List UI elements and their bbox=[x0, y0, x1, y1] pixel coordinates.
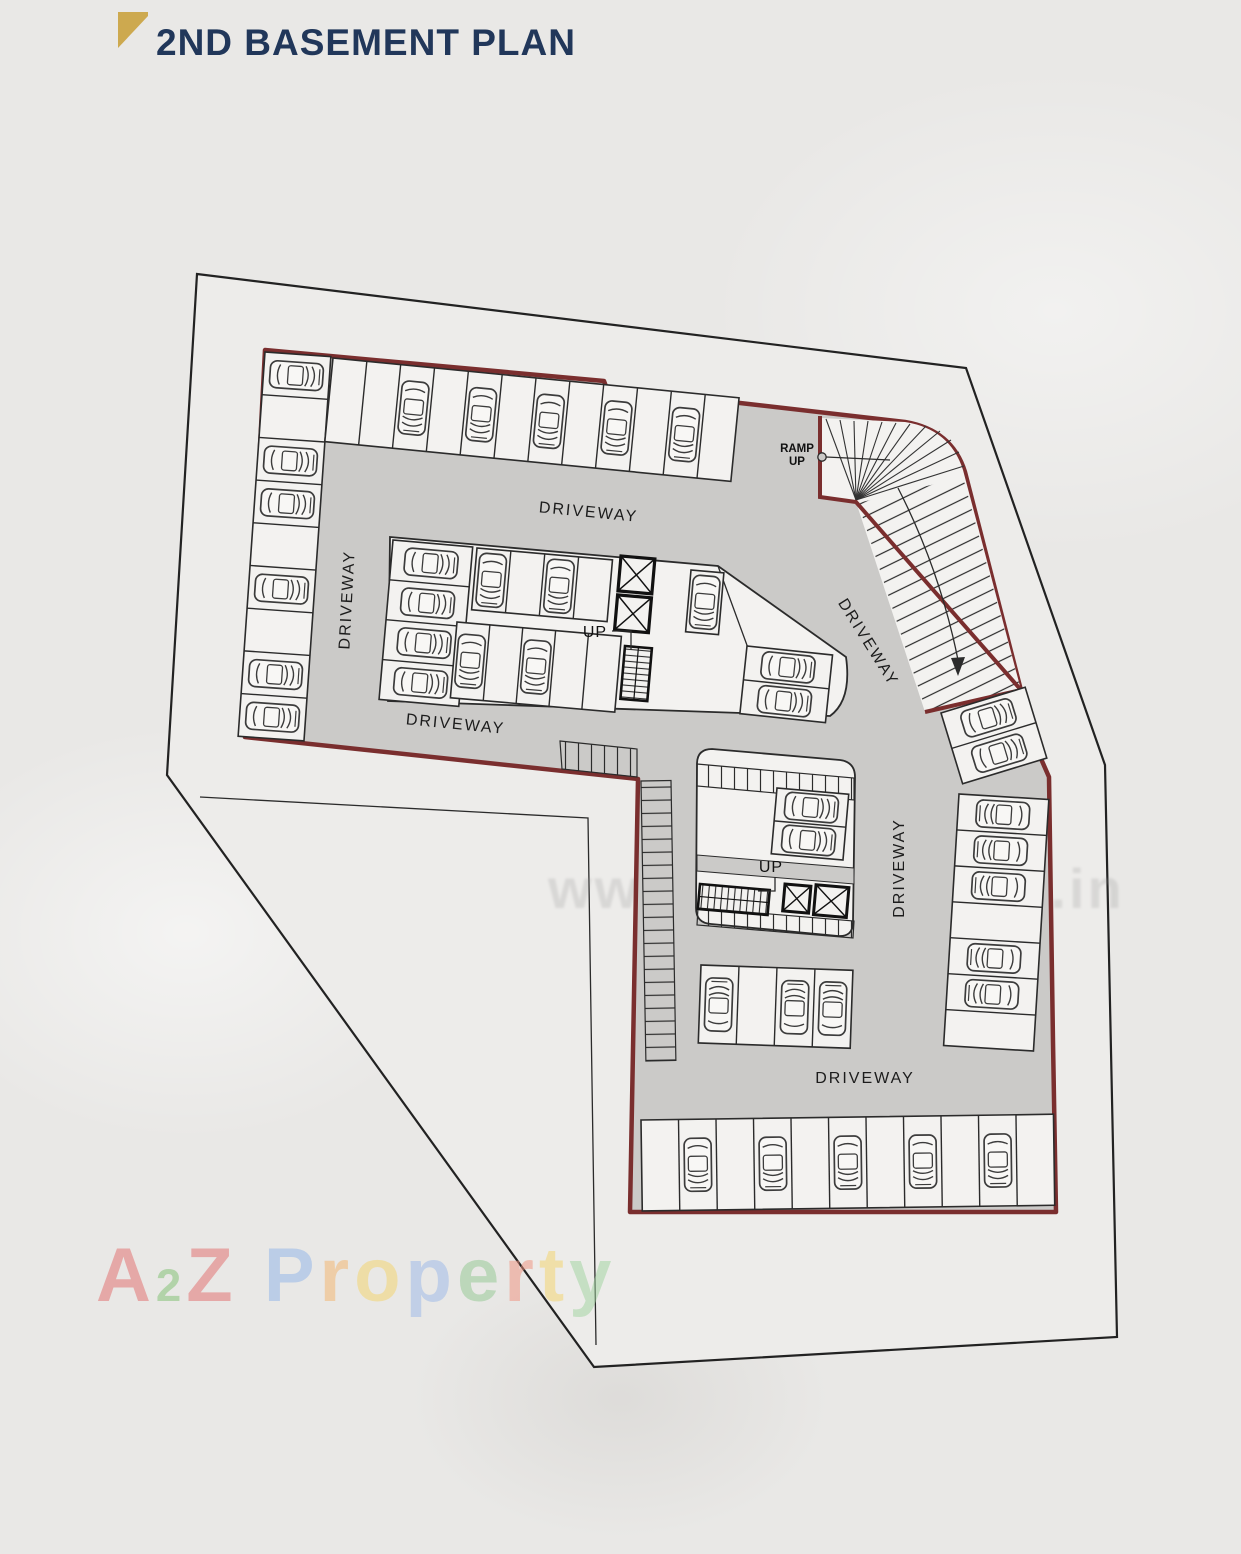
car-icon bbox=[967, 943, 1022, 973]
car-icon bbox=[684, 1138, 712, 1191]
brand-watermark: A2Z Property bbox=[96, 1232, 616, 1319]
car-icon bbox=[784, 792, 839, 824]
brand-letter: e bbox=[457, 1233, 504, 1318]
brand-letter: o bbox=[354, 1233, 405, 1318]
brand-letter: P bbox=[264, 1233, 320, 1318]
car-icon bbox=[260, 488, 315, 519]
car-icon bbox=[454, 634, 486, 689]
car-icon bbox=[818, 982, 847, 1036]
car-icon bbox=[760, 651, 816, 683]
brand-letter: p bbox=[406, 1233, 457, 1318]
car-icon bbox=[400, 587, 455, 619]
car-icon bbox=[465, 387, 497, 442]
brand-letter: 2 bbox=[156, 1260, 186, 1311]
car-icon bbox=[254, 574, 309, 605]
floor-plan-svg: www.a2zproperty.in bbox=[0, 0, 1241, 1554]
brand-letter: r bbox=[320, 1233, 355, 1318]
parking-row-island-row bbox=[698, 965, 853, 1048]
car-icon bbox=[971, 871, 1026, 901]
lower-elevators bbox=[783, 882, 849, 917]
car-icon bbox=[248, 659, 303, 690]
car-icon bbox=[245, 702, 300, 733]
car-icon bbox=[834, 1136, 862, 1189]
parking-row-mid-right-stall bbox=[686, 570, 724, 635]
car-icon bbox=[984, 1134, 1012, 1187]
car-icon bbox=[263, 446, 318, 477]
car-icon bbox=[393, 667, 448, 699]
brand-letter: t bbox=[539, 1233, 569, 1318]
parking-row-mid-upper-row bbox=[472, 548, 613, 622]
up-label-mid: UP bbox=[583, 624, 607, 641]
parking-row-lower-block-stalls bbox=[771, 788, 848, 860]
lower-stairs bbox=[698, 884, 770, 915]
ramp-up-label-line2: UP bbox=[789, 456, 805, 468]
car-icon bbox=[397, 380, 429, 435]
parking-row-bottom-row bbox=[641, 1114, 1055, 1211]
car-icon bbox=[404, 548, 459, 580]
car-icon bbox=[781, 825, 836, 857]
mid-stairs bbox=[620, 646, 652, 701]
car-icon bbox=[475, 553, 507, 608]
left-wall-strip bbox=[641, 780, 676, 1060]
car-icon bbox=[520, 639, 552, 694]
car-icon bbox=[909, 1135, 937, 1188]
car-icon bbox=[965, 979, 1020, 1009]
car-icon bbox=[759, 1137, 787, 1190]
car-icon bbox=[269, 360, 324, 391]
car-icon bbox=[668, 407, 700, 462]
car-icon bbox=[704, 978, 733, 1032]
car-icon bbox=[780, 980, 809, 1034]
car-icon bbox=[397, 627, 452, 659]
car-icon bbox=[533, 394, 565, 449]
brand-letter: Z bbox=[186, 1233, 237, 1318]
car-icon bbox=[973, 836, 1028, 866]
car-icon bbox=[601, 400, 633, 455]
brand-letter bbox=[238, 1233, 264, 1318]
car-icon bbox=[543, 559, 575, 614]
car-icon bbox=[689, 575, 721, 630]
car-icon bbox=[976, 800, 1031, 830]
ramp-up-label-line1: RAMP bbox=[780, 443, 814, 455]
up-label-lower: UP bbox=[759, 859, 783, 876]
parking-row-mid-diagonal-stalls bbox=[740, 646, 833, 723]
brand-letter: A bbox=[96, 1233, 156, 1318]
brand-letter: y bbox=[569, 1233, 616, 1318]
parking-row-right-column bbox=[944, 794, 1049, 1051]
driveway-label-right: DRIVEWAY bbox=[891, 818, 908, 918]
brand-letter: r bbox=[504, 1233, 539, 1318]
car-icon bbox=[757, 685, 813, 717]
driveway-label-bottom: DRIVEWAY bbox=[815, 1070, 915, 1087]
